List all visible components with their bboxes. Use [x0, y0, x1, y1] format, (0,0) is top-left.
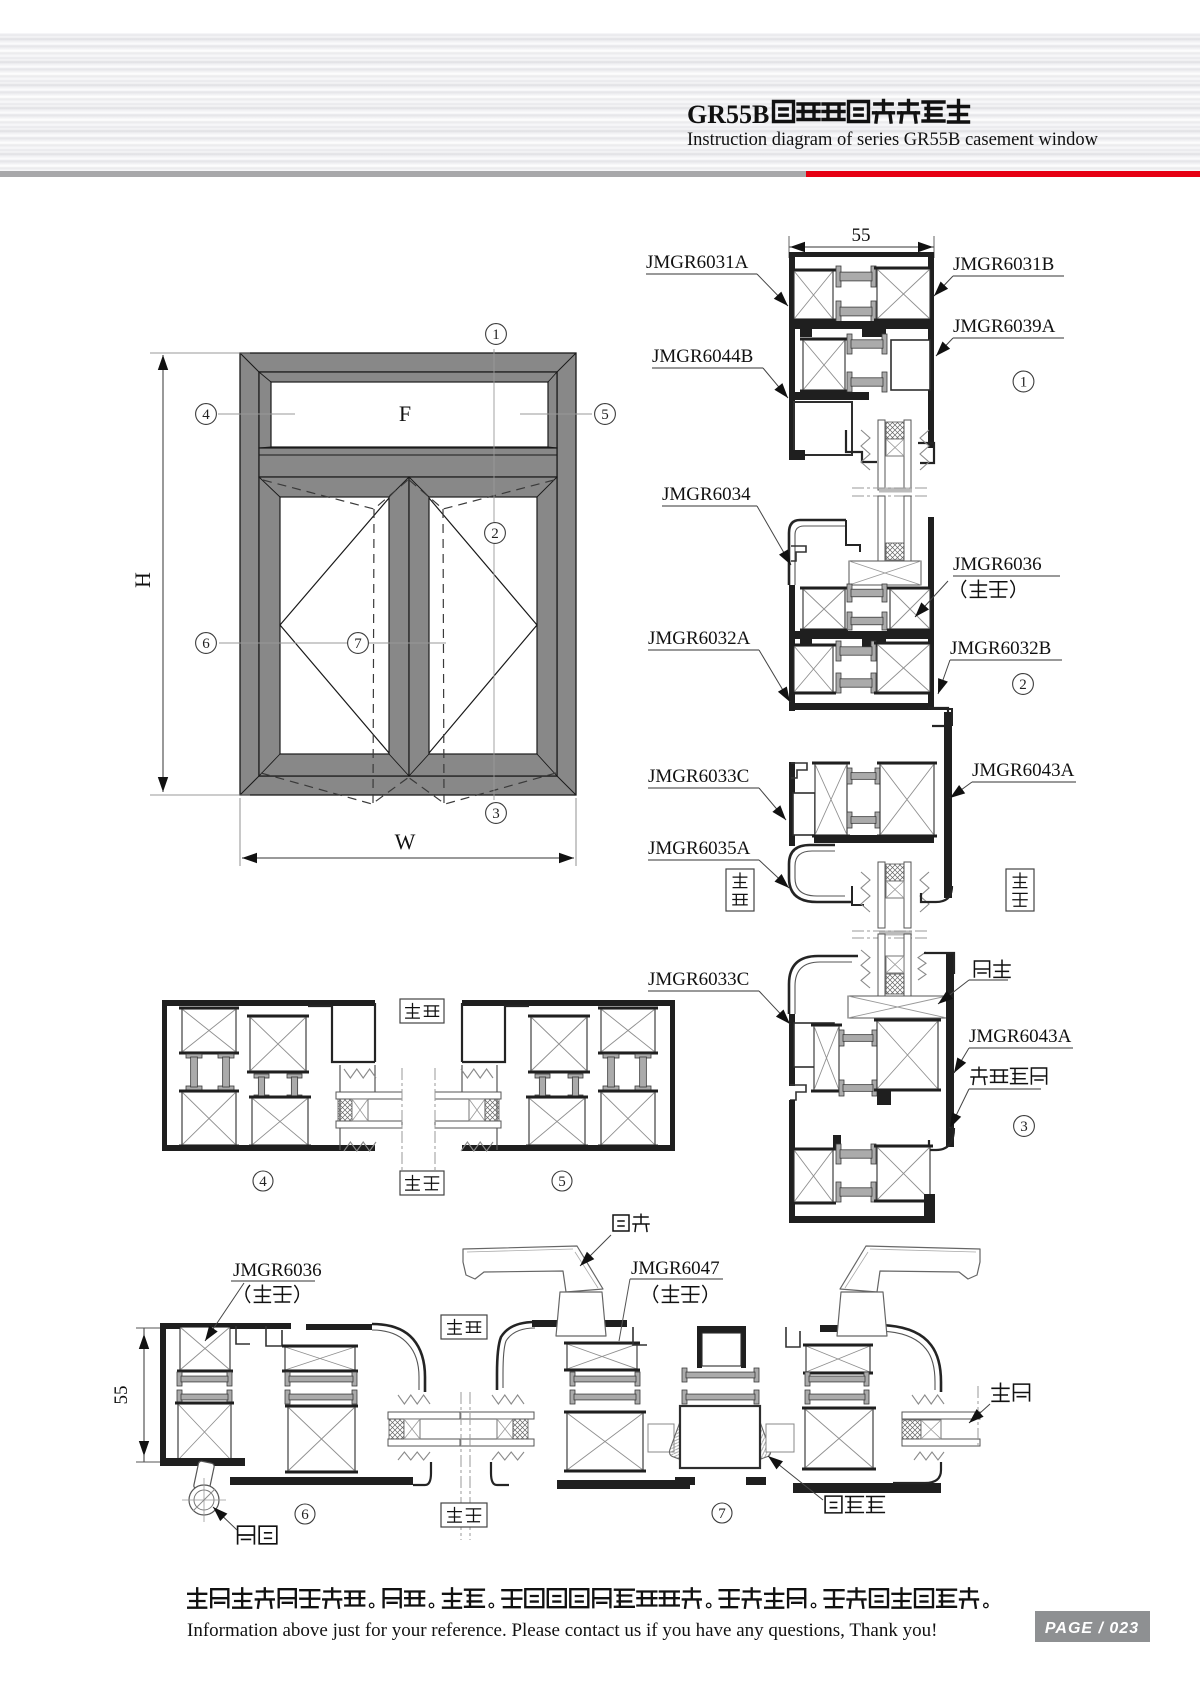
svg-text:2: 2: [491, 526, 499, 542]
svg-text:F: F: [399, 401, 411, 426]
svg-text:2: 2: [1019, 677, 1027, 693]
svg-text:JMGR6036: JMGR6036: [953, 554, 1042, 575]
svg-text:JMGR6047: JMGR6047: [631, 1258, 720, 1279]
svg-text:3: 3: [492, 806, 500, 822]
svg-text:W: W: [395, 829, 416, 854]
svg-text:1: 1: [492, 327, 500, 343]
svg-text:55: 55: [111, 1386, 132, 1405]
svg-text:7: 7: [718, 1506, 726, 1522]
svg-text:Information above just for you: Information above just for your referenc…: [187, 1620, 937, 1641]
svg-text:H: H: [130, 572, 155, 588]
svg-text:JMGR6036: JMGR6036: [233, 1260, 322, 1281]
svg-text:JMGR6043A: JMGR6043A: [969, 1026, 1072, 1047]
svg-text:JMGR6034: JMGR6034: [662, 484, 751, 505]
svg-text:JMGR6031A: JMGR6031A: [646, 252, 749, 273]
svg-text:JMGR6033C: JMGR6033C: [648, 766, 749, 787]
svg-text:7: 7: [354, 636, 362, 652]
svg-text:JMGR6035A: JMGR6035A: [648, 838, 751, 859]
svg-text:JMGR6043A: JMGR6043A: [972, 760, 1075, 781]
svg-text:3: 3: [1020, 1119, 1028, 1135]
svg-text:JMGR6033C: JMGR6033C: [648, 969, 749, 990]
svg-text:5: 5: [558, 1174, 566, 1190]
svg-text:6: 6: [301, 1507, 309, 1523]
svg-text:4: 4: [259, 1174, 267, 1190]
svg-text:JMGR6044B: JMGR6044B: [652, 346, 753, 367]
svg-text:PAGE / 023: PAGE / 023: [1045, 1620, 1139, 1637]
svg-text:JMGR6039A: JMGR6039A: [953, 316, 1056, 337]
svg-text:55: 55: [852, 225, 871, 246]
svg-text:5: 5: [601, 407, 609, 423]
svg-text:JMGR6031B: JMGR6031B: [953, 254, 1054, 275]
svg-text:4: 4: [202, 407, 210, 423]
svg-text:JMGR6032A: JMGR6032A: [648, 628, 751, 649]
svg-text:JMGR6032B: JMGR6032B: [950, 638, 1051, 659]
svg-text:6: 6: [202, 636, 210, 652]
svg-text:1: 1: [1020, 375, 1028, 391]
